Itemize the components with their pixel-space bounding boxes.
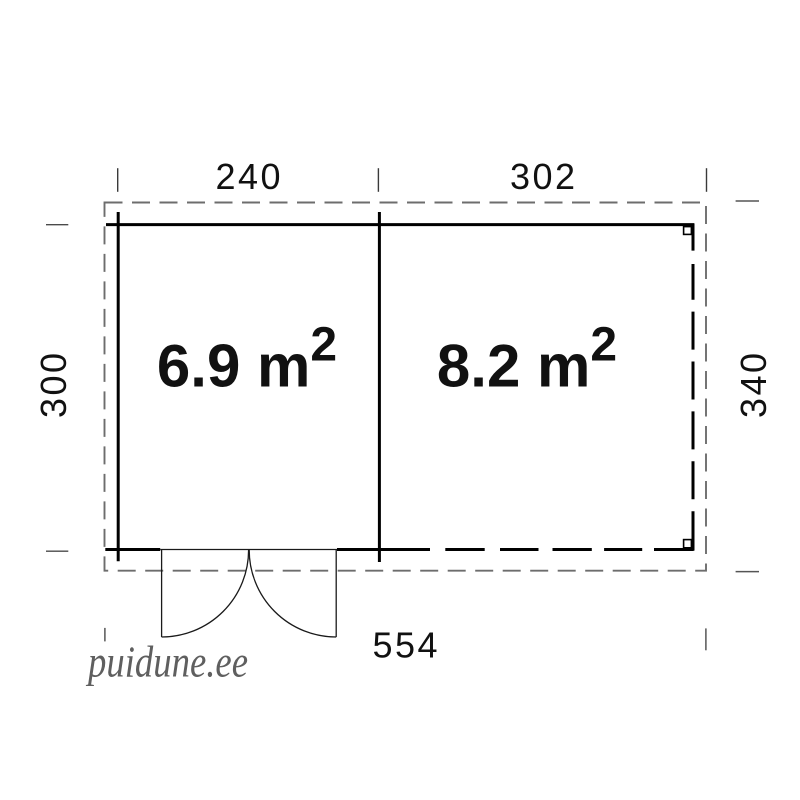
svg-text:340: 340 [733,353,774,418]
svg-text:554: 554 [373,625,438,666]
svg-text:240: 240 [216,156,281,197]
svg-text:300: 300 [33,353,74,418]
svg-text:puidune.ee: puidune.ee [85,638,248,687]
svg-text:302: 302 [510,156,575,197]
